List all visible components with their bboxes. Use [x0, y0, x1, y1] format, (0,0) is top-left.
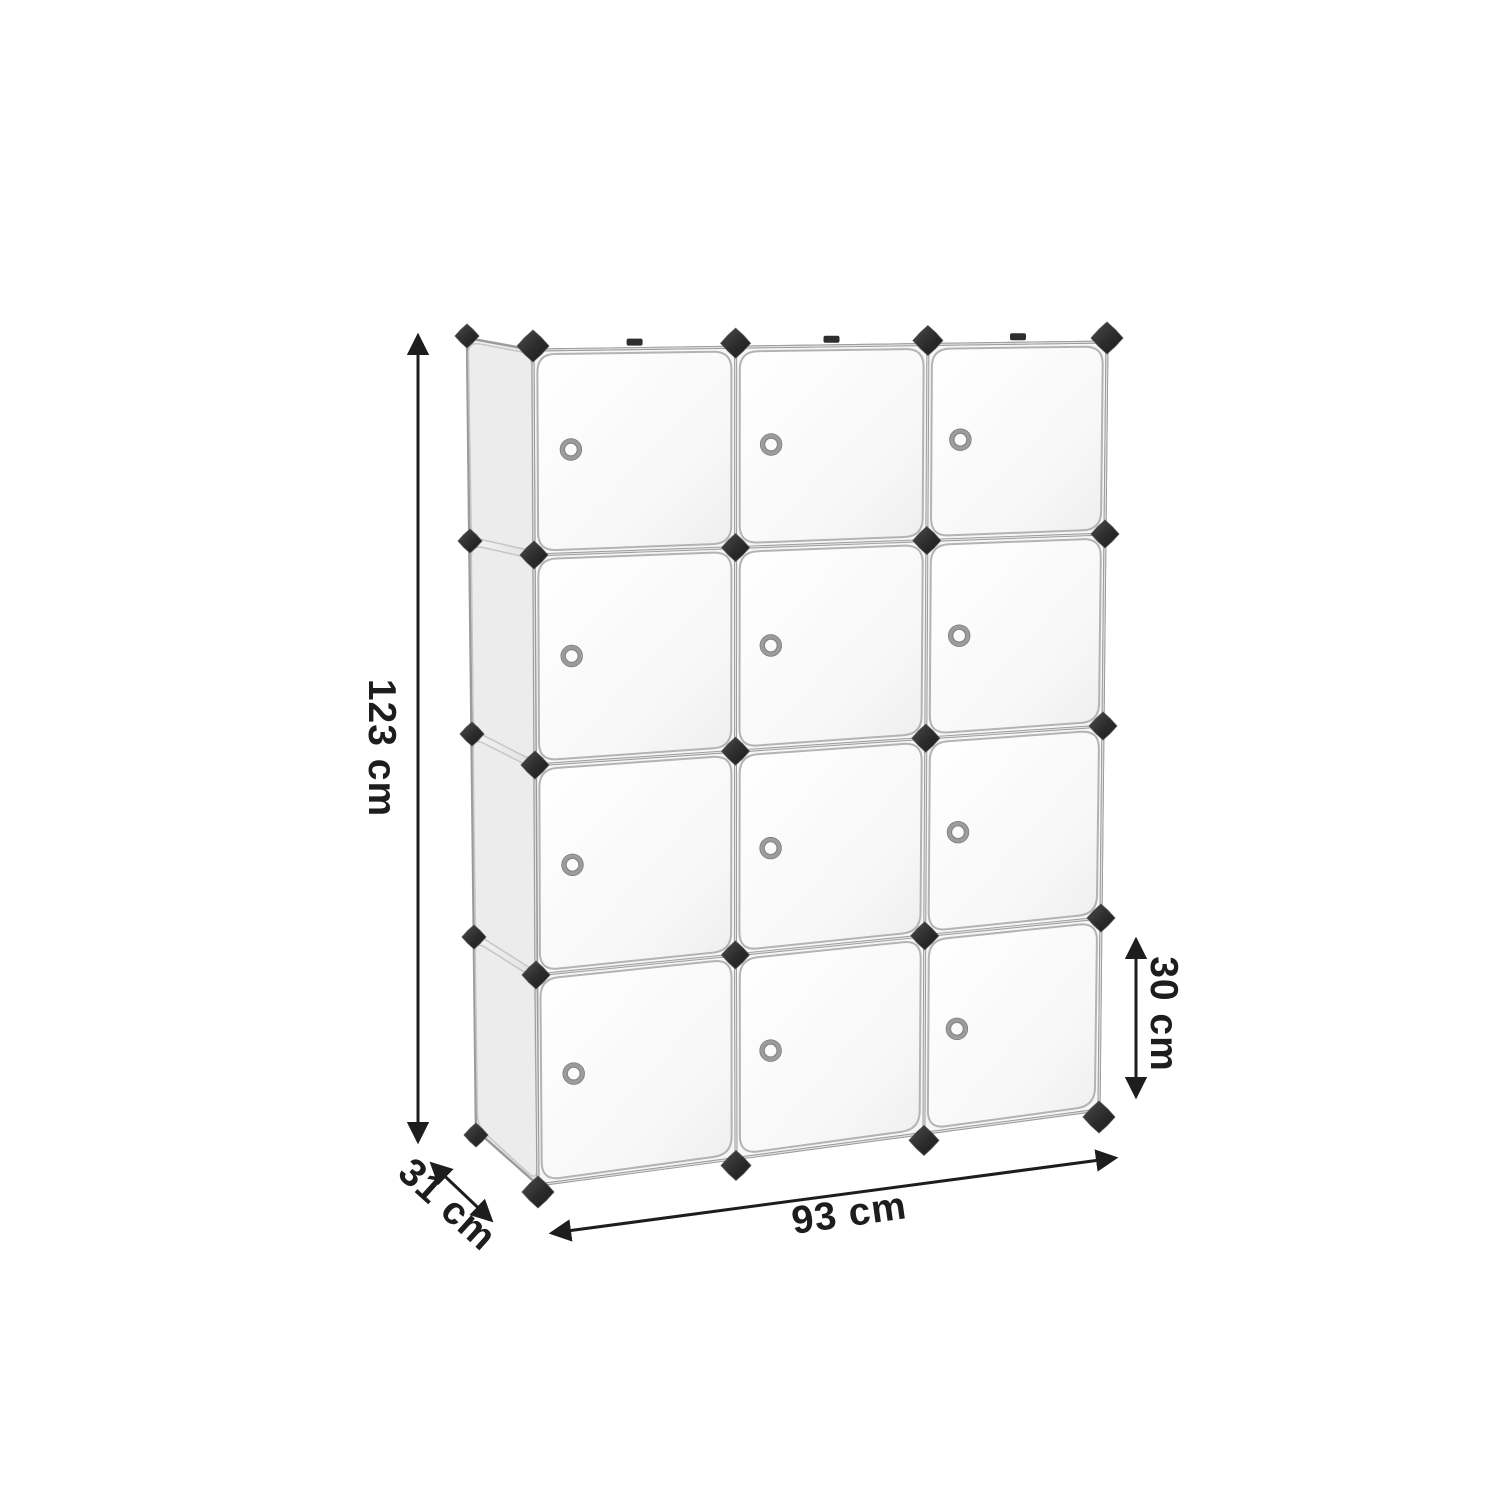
cube-door [739, 744, 921, 949]
depth-label: 31 cm [390, 1150, 505, 1259]
cube-door [740, 546, 923, 746]
height-dimension: 123 cm [360, 336, 418, 1141]
cube-door [929, 732, 1099, 930]
cube-door [740, 942, 921, 1152]
cube-door [930, 539, 1101, 732]
storage-cabinet [455, 322, 1123, 1208]
cube-door [928, 924, 1097, 1126]
cube-height-label: 30 cm [1142, 956, 1185, 1072]
cube-door [931, 347, 1103, 536]
cube-door [539, 757, 731, 969]
width-label: 93 cm [789, 1184, 909, 1243]
cube-door [537, 352, 731, 550]
side-panel-section [468, 344, 532, 549]
height-label: 123 cm [360, 679, 403, 817]
depth-dimension: 31 cm [390, 1150, 505, 1259]
product-image: 123 cm 31 cm 93 cm 30 cm [0, 0, 1500, 1500]
cube-door [740, 349, 924, 542]
side-panel-section [471, 547, 534, 757]
top-clip [824, 336, 840, 343]
dimension-diagram-svg: 123 cm 31 cm 93 cm 30 cm [0, 0, 1500, 1500]
top-clip [627, 339, 643, 346]
cabinet-doors [537, 347, 1102, 1179]
top-clip [1010, 333, 1026, 340]
cube-door [538, 553, 731, 760]
cube-height-dimension: 30 cm [1136, 940, 1185, 1096]
